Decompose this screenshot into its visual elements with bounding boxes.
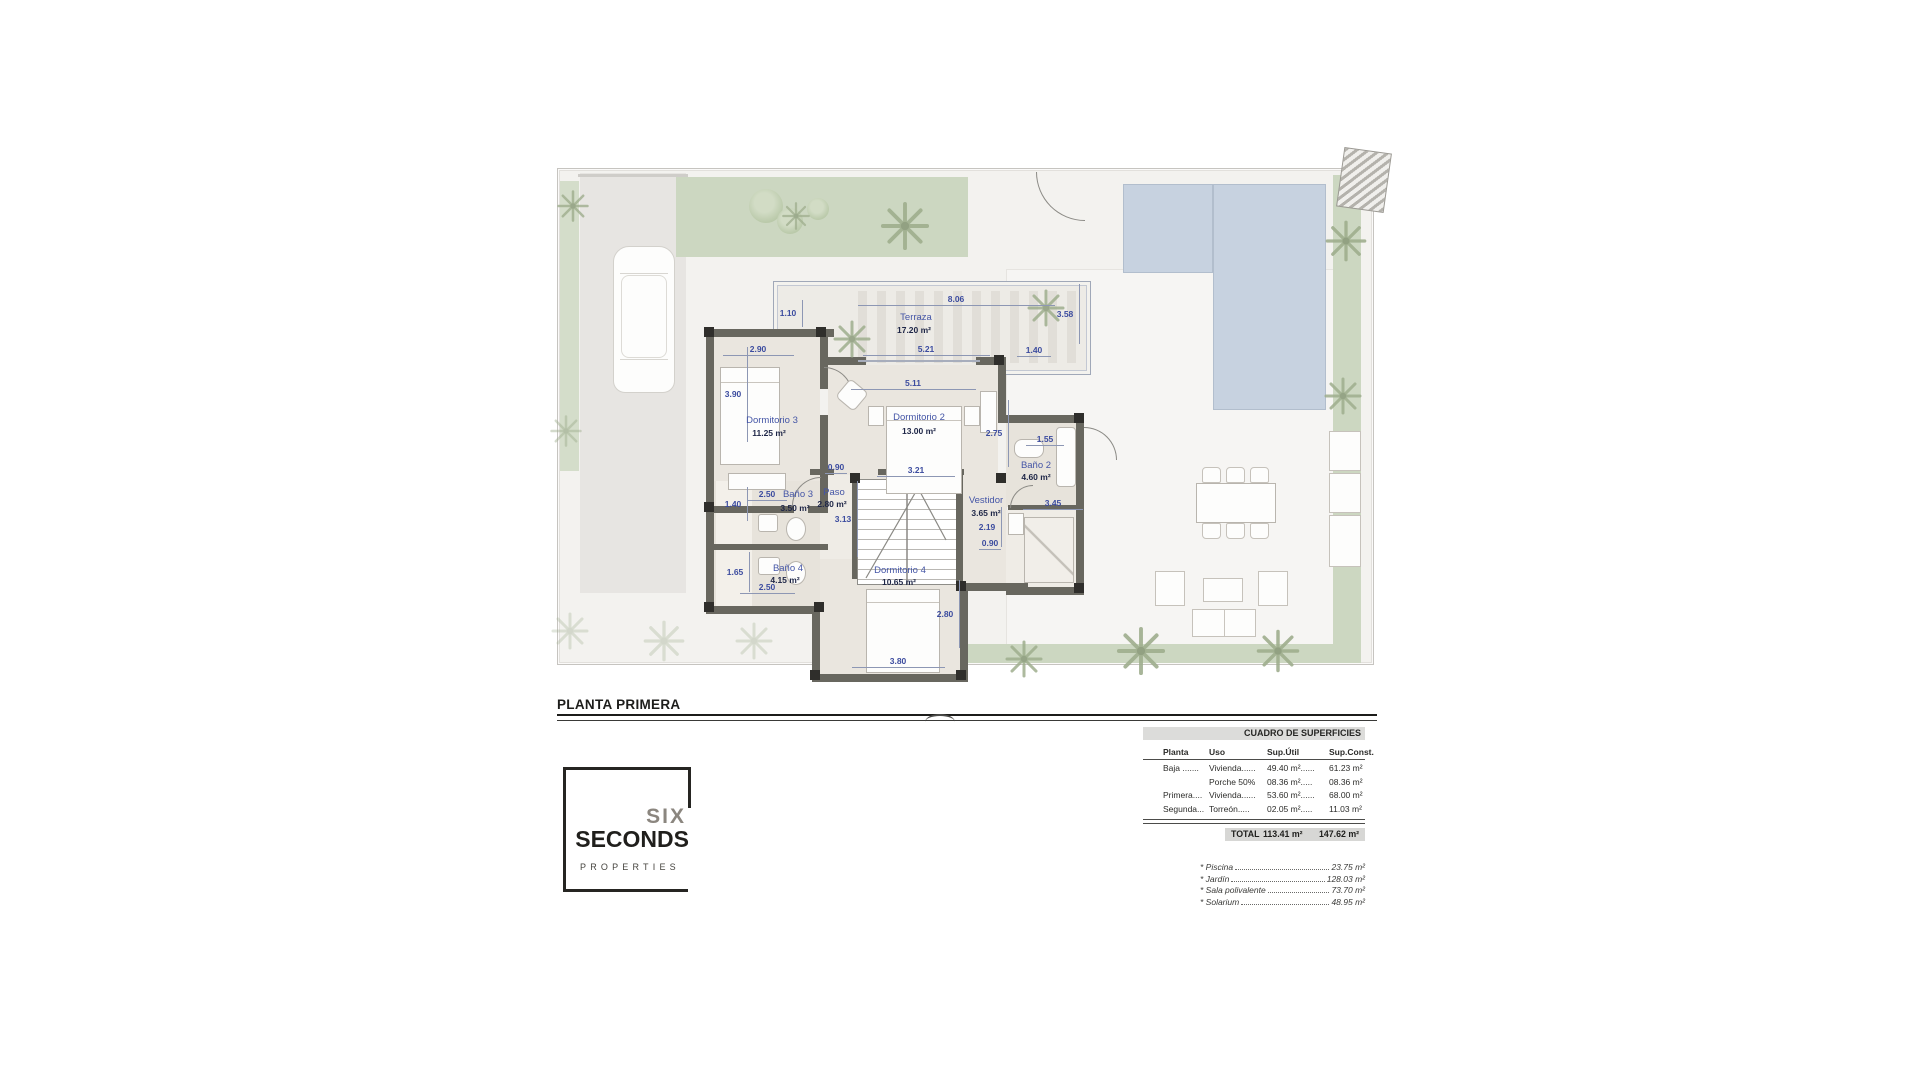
- table-cell-uso: Porche 50%: [1209, 776, 1267, 790]
- dimension-line: [979, 549, 1001, 550]
- dimension-label: 3.45: [1045, 499, 1062, 508]
- lounger-icon: [1329, 473, 1361, 513]
- total-label: TOTAL: [1225, 828, 1263, 841]
- extras-name: * Jardín: [1200, 874, 1229, 886]
- palm-tree-icon: [1323, 376, 1363, 416]
- dotted-leader: [1268, 892, 1330, 893]
- pool-main-section: [1213, 184, 1326, 410]
- wall-segment: [812, 674, 968, 682]
- dimension-label: 1.40: [725, 500, 742, 509]
- sliding-door-line: [858, 360, 980, 362]
- wall-segment: [706, 544, 828, 550]
- surfaces-table-body: Baja .......Vivienda......49.40 m²......…: [1143, 760, 1365, 816]
- palm-tree-icon: [1004, 639, 1044, 679]
- extras-row: * Piscina23.75 m²: [1200, 862, 1365, 874]
- page-title: PLANTA PRIMERA: [557, 697, 1377, 712]
- dimension-line: [747, 347, 748, 442]
- fence-line: [578, 174, 688, 177]
- bathtub-icon-bano2: [1056, 427, 1076, 487]
- wall-corner-post: [814, 602, 824, 612]
- room-label: 2.80 m²: [817, 500, 846, 509]
- room-label: 10.65 m²: [882, 578, 916, 587]
- dimension-label: 1.65: [727, 568, 744, 577]
- table-cell-const: 68.00 m²: [1329, 789, 1383, 803]
- dimension-label: 2.75: [986, 429, 1003, 438]
- palm-tree-icon: [556, 189, 590, 223]
- col-sup-util: Sup.Útil: [1267, 747, 1329, 757]
- palm-tree-icon: [550, 611, 590, 651]
- col-uso: Uso: [1209, 747, 1267, 757]
- wall-corner-post: [994, 355, 1004, 365]
- dimension-line: [1017, 356, 1051, 357]
- extras-name: * Solarium: [1200, 897, 1239, 909]
- dimension-line: [825, 473, 847, 474]
- wall-segment: [706, 606, 820, 614]
- wall-segment: [706, 329, 834, 337]
- dimension-line: [959, 580, 960, 648]
- pool-shallow-section: [1123, 184, 1213, 273]
- logo-word-properties: PROPERTIES: [580, 863, 680, 872]
- dimension-label: 0.90: [828, 463, 845, 472]
- table-cell-planta: Segunda...: [1163, 803, 1209, 817]
- dimension-line: [1008, 400, 1009, 467]
- palm-tree-icon: [879, 200, 931, 252]
- table-cell-util: 08.36 m².....: [1267, 776, 1329, 790]
- dimension-line: [1023, 509, 1083, 510]
- room-label: 11.25 m²: [752, 429, 786, 438]
- coffee-table-icon: [1203, 578, 1243, 602]
- toilet-icon-bano3: [786, 517, 806, 541]
- surfaces-table-header: Planta Uso Sup.Útil Sup.Const.: [1143, 747, 1365, 760]
- room-label: Dormitorio 2: [893, 413, 945, 423]
- dimension-line: [858, 305, 1055, 306]
- wall-corner-post: [704, 602, 714, 612]
- dimension-label: 2.80: [937, 610, 954, 619]
- wall-corner-post: [996, 473, 1006, 483]
- room-label: 3.65 m²: [971, 509, 1000, 518]
- bench-icon-dormitorio2: [980, 391, 997, 433]
- dimension-label: 0.90: [982, 539, 999, 548]
- dining-chair-icon: [1250, 467, 1269, 483]
- room-label: Terraza: [900, 313, 932, 323]
- table-cell-const: 11.03 m²: [1329, 803, 1383, 817]
- dotted-leader: [1241, 904, 1329, 905]
- armchair-icon: [1155, 571, 1185, 606]
- logo-border-segment: [688, 767, 691, 808]
- dimension-label: 1.55: [1037, 435, 1054, 444]
- dimension-line: [1001, 507, 1002, 547]
- dimension-label: 3.90: [725, 390, 742, 399]
- palm-tree-icon: [734, 621, 774, 661]
- extras-name: * Piscina: [1200, 862, 1233, 874]
- wall-corner-post: [956, 670, 966, 680]
- dimension-label: 3.21: [908, 466, 925, 475]
- dimension-label: 8.06: [948, 295, 965, 304]
- room-label: Paso: [823, 488, 845, 498]
- wall-corner-post: [1074, 583, 1084, 593]
- extras-value: 128.03 m²: [1327, 874, 1365, 886]
- table-cell-planta: [1163, 776, 1209, 790]
- neighbor-roof-hatch-icon: [1336, 147, 1392, 213]
- total-util: 113.41 m²: [1263, 828, 1319, 841]
- table-cell-uso: Vivienda......: [1209, 762, 1267, 776]
- extras-row: * Jardín128.03 m²: [1200, 874, 1365, 886]
- total-const: 147.62 m²: [1319, 828, 1365, 841]
- dimension-line: [747, 487, 748, 521]
- table-cell-util: 49.40 m²......: [1267, 762, 1329, 776]
- table-cell-planta: Primera....: [1163, 789, 1209, 803]
- car-icon: [613, 246, 675, 393]
- palm-tree-icon: [832, 319, 872, 359]
- dimension-line: [723, 355, 794, 356]
- car-rear-window: [620, 359, 668, 360]
- dining-chair-icon: [1226, 467, 1245, 483]
- dotted-leader: [1235, 869, 1329, 870]
- dimension-line: [851, 389, 976, 390]
- room-label: Baño 2: [1021, 461, 1051, 471]
- extras-name: * Sala polivalente: [1200, 885, 1266, 897]
- plan-title-block: PLANTA PRIMERA: [557, 697, 1377, 721]
- car-windshield: [620, 273, 668, 274]
- table-cell-const: 61.23 m²: [1329, 762, 1383, 776]
- table-cell-uso: Vivienda......: [1209, 789, 1267, 803]
- nightstand-icon: [868, 406, 884, 426]
- table-row: Baja .......Vivienda......49.40 m²......…: [1143, 762, 1365, 776]
- extras-row: * Sala polivalente73.70 m²: [1200, 885, 1365, 897]
- surfaces-table: CUADRO DE SUPERFICIES Planta Uso Sup.Úti…: [1143, 727, 1365, 908]
- wall-segment: [1076, 415, 1084, 595]
- room-label: 13.00 m²: [902, 427, 936, 436]
- room-label: Vestidor: [969, 496, 1003, 506]
- room-label: Baño 3: [783, 490, 813, 500]
- dimension-line: [877, 476, 955, 477]
- washer-icon: [1008, 513, 1024, 535]
- room-label: 3.50 m²: [780, 504, 809, 513]
- dining-chair-icon: [1202, 523, 1221, 539]
- extras-list: * Piscina23.75 m²* Jardín128.03 m²* Sala…: [1200, 862, 1365, 908]
- table-row: Porche 50%08.36 m².....08.36 m²: [1143, 776, 1365, 790]
- palm-tree-icon: [1115, 625, 1167, 677]
- palm-tree-icon: [1324, 219, 1368, 263]
- surfaces-table-title: CUADRO DE SUPERFICIES: [1143, 727, 1365, 740]
- dimension-label: 5.11: [905, 379, 921, 388]
- dimension-label: 3.13: [835, 515, 852, 524]
- table-cell-util: 02.05 m².....: [1267, 803, 1329, 817]
- company-logo: SIX SECONDS PROPERTIES: [563, 767, 688, 892]
- dimension-line: [747, 500, 787, 501]
- wall-corner-post: [1074, 413, 1084, 423]
- palm-tree-icon: [1255, 628, 1301, 674]
- table-double-rule: [1143, 819, 1365, 824]
- wall-corner-post: [810, 670, 820, 680]
- table-cell-uso: Torreón.....: [1209, 803, 1267, 817]
- armchair-icon: [1258, 571, 1288, 606]
- extras-row: * Solarium48.95 m²: [1200, 897, 1365, 909]
- dining-chair-icon: [1250, 523, 1269, 539]
- car-roof: [621, 275, 667, 358]
- room-label: Dormitorio 4: [874, 566, 926, 576]
- wall-corner-post: [704, 327, 714, 337]
- palm-tree-icon: [549, 414, 583, 448]
- room-label: 4.60 m²: [1021, 473, 1050, 482]
- table-row: Primera....Vivienda......53.60 m²......6…: [1143, 789, 1365, 803]
- site-plan: 8.061.10Terraza17.20 m²3.582.905.211.405…: [557, 168, 1374, 665]
- dimension-line: [749, 552, 750, 592]
- wall-segment: [706, 329, 714, 614]
- dimension-label: 3.80: [890, 657, 907, 666]
- sofa-icon: [1192, 609, 1256, 637]
- wall-segment: [998, 415, 1084, 423]
- floorplan-page: 8.061.10Terraza17.20 m²3.582.905.211.405…: [0, 0, 1920, 1080]
- room-label: Dormitorio 3: [746, 416, 798, 426]
- dimension-line: [802, 300, 803, 327]
- dimension-label: 2.50: [759, 490, 776, 499]
- shower-icon-wet-area: [1024, 517, 1074, 583]
- dimension-label: 3.58: [1057, 310, 1074, 319]
- dimension-line: [740, 593, 795, 594]
- dimension-label: 1.10: [780, 309, 797, 318]
- decorative-arc: [925, 714, 955, 730]
- col-planta: Planta: [1163, 747, 1209, 757]
- dimension-label: 2.19: [979, 523, 996, 532]
- logo-word-six: SIX: [646, 806, 686, 827]
- dining-chair-icon: [1202, 467, 1221, 483]
- title-underline: [557, 714, 1377, 721]
- lounger-icon: [1329, 515, 1361, 567]
- lounger-icon: [1329, 431, 1361, 471]
- table-cell-util: 53.60 m²......: [1267, 789, 1329, 803]
- table-cell-const: 08.36 m²: [1329, 776, 1383, 790]
- palm-tree-icon: [642, 619, 686, 663]
- wall-corner-post: [704, 502, 714, 512]
- wall-segment: [1006, 587, 1084, 595]
- room-label: 17.20 m²: [897, 326, 931, 335]
- dimension-label: 2.90: [750, 345, 767, 354]
- wall-segment: [998, 357, 1006, 423]
- dining-chair-icon: [1226, 523, 1245, 539]
- wall-corner-post: [816, 327, 826, 337]
- col-sup-const: Sup.Const.: [1329, 747, 1383, 757]
- dimension-line: [857, 481, 858, 557]
- dimension-label: 2.50: [759, 583, 776, 592]
- extras-value: 23.75 m²: [1331, 862, 1365, 874]
- dining-table-icon: [1196, 483, 1276, 523]
- dresser-icon-dormitorio3: [728, 473, 786, 490]
- palm-tree-icon: [1026, 288, 1066, 328]
- room-label: Baño 4: [773, 564, 803, 574]
- logo-word-seconds: SECONDS: [575, 828, 689, 851]
- wall-segment: [960, 589, 968, 682]
- dimension-line: [1026, 445, 1064, 446]
- extras-value: 48.95 m²: [1331, 897, 1365, 909]
- dimension-line: [863, 355, 990, 356]
- nightstand-icon: [964, 406, 980, 426]
- gate-swing-arc: [1036, 172, 1085, 221]
- wall-corner-post: [956, 581, 966, 591]
- sink-icon-bano3: [758, 514, 778, 532]
- dimension-label: 1.40: [1026, 346, 1043, 355]
- table-cell-planta: Baja .......: [1163, 762, 1209, 776]
- total-row: TOTAL 113.41 m² 147.62 m²: [1225, 828, 1365, 841]
- palm-tree-icon: [781, 201, 811, 231]
- table-row: Segunda...Torreón.....02.05 m².....11.03…: [1143, 803, 1365, 817]
- dimension-label: 5.21: [918, 345, 935, 354]
- wall-corner-post: [850, 473, 860, 483]
- dotted-leader: [1231, 881, 1324, 882]
- dimension-line: [1079, 284, 1080, 344]
- extras-value: 73.70 m²: [1331, 885, 1365, 897]
- dimension-line: [852, 667, 945, 668]
